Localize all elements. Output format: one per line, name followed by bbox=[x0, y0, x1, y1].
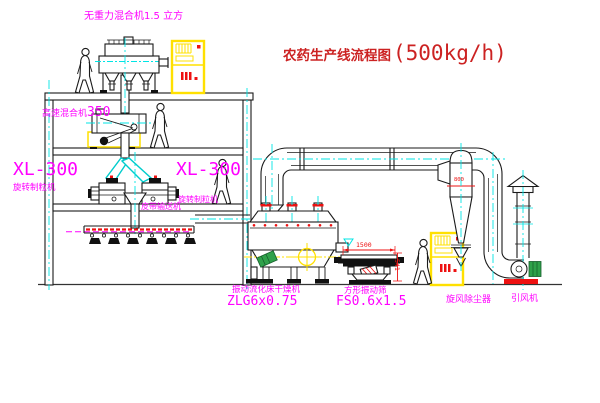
diagram-root: 农药生产线流程图 (500kg/h) 无重力混合机1.5 立方 高速混合机350… bbox=[0, 0, 600, 403]
dim-sieve-height: 541 bbox=[394, 259, 401, 271]
dim-sieve-width: 1500 bbox=[356, 242, 372, 249]
label-high-speed-mixer-name: 高速混合机 bbox=[42, 109, 87, 119]
label-fan: 引风机 bbox=[511, 295, 538, 304]
person-floor2 bbox=[151, 103, 169, 148]
induced-draft-fan bbox=[504, 261, 541, 284]
label-cyclone: 旋风除尘器 bbox=[446, 296, 491, 305]
control-cabinet-top bbox=[172, 41, 204, 93]
label-granulator-right-name: 旋转制粒机 bbox=[178, 196, 218, 204]
person-roof bbox=[76, 48, 94, 93]
label-dryer-model: ZLG6x0.75 bbox=[227, 295, 297, 308]
label-gravity-free-mixer: 无重力混合机1.5 立方 bbox=[84, 12, 183, 22]
label-granulator-left-name: 旋转制粒机 bbox=[13, 184, 56, 193]
title-capacity: (500kg/h) bbox=[393, 44, 507, 64]
label-belt-conveyor: 皮带输送机 bbox=[141, 203, 181, 211]
label-granulator-left-model: XL-300 bbox=[13, 161, 78, 179]
granulator-left bbox=[88, 176, 125, 205]
label-high-speed-mixer: 高速混合机350 bbox=[42, 106, 111, 119]
person-ground bbox=[414, 239, 432, 284]
label-high-speed-mixer-model: 350 bbox=[87, 105, 110, 120]
label-sieve-model: FS0.6x1.5 bbox=[336, 295, 406, 308]
belt-conveyor bbox=[66, 215, 254, 244]
dim-cyclone-outlet: 800 bbox=[454, 178, 464, 184]
diagram-title: 农药生产线流程图 (500kg/h) bbox=[283, 44, 507, 64]
label-granulator-right-model: XL-300 bbox=[176, 161, 241, 179]
fluid-bed-dryer bbox=[244, 196, 353, 284]
title-text: 农药生产线流程图 bbox=[283, 44, 391, 64]
